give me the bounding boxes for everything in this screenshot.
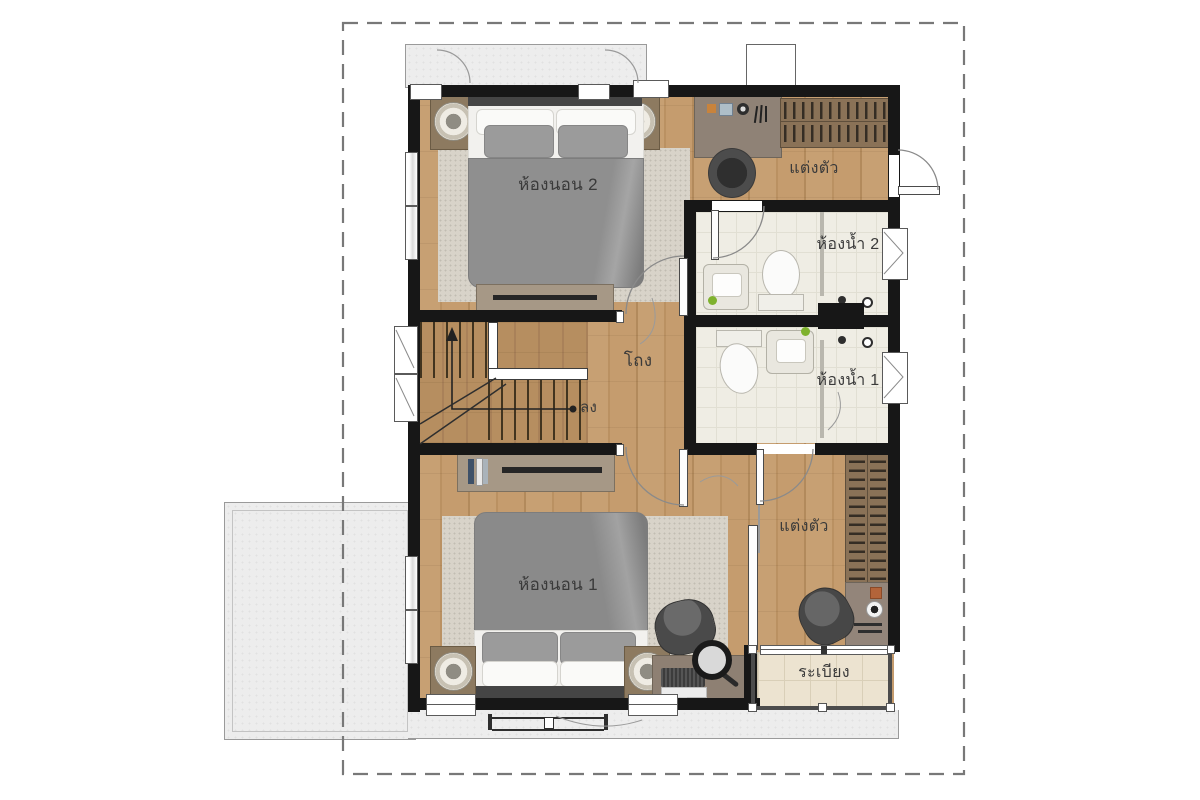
window [628, 694, 678, 716]
window [578, 84, 610, 100]
wardrobe-hangers-icon [780, 98, 890, 148]
pergola-beam-icon [492, 717, 604, 731]
bathroom2-shower-divider [820, 212, 824, 296]
toilet-icon [761, 250, 799, 312]
pillow-icon [484, 125, 554, 158]
brush-icon [858, 630, 882, 633]
railing-post [886, 703, 895, 712]
book-icon [719, 103, 733, 116]
sink-icon [766, 330, 814, 374]
wall-bedroom1-hall [420, 443, 622, 455]
brush-icon [754, 106, 758, 123]
brush-icon [854, 623, 882, 626]
shower-drain-icon [862, 337, 873, 348]
shower-valve-icon [838, 336, 846, 344]
pillow-icon [482, 661, 558, 687]
door-swing-arc [898, 150, 938, 190]
stair-lower-flight [488, 378, 588, 440]
bowl-icon [866, 601, 883, 618]
tray-icon [707, 104, 716, 113]
wall-bathrooms-vertical [684, 200, 696, 455]
balcony-sliding-door [760, 645, 888, 655]
window [426, 694, 476, 716]
bedroom1-headboard [474, 686, 646, 698]
bathroom1-label: ห้องน้ำ 1 [804, 372, 892, 390]
bedroom2-label: ห้องนอน 2 [500, 176, 616, 195]
toilet-icon [716, 330, 760, 394]
balcony-railing [888, 648, 892, 710]
book-icon [476, 458, 483, 486]
wall-bathroom1-bottom-left [684, 443, 757, 455]
bathroom1-door-leaf [756, 449, 764, 505]
bedside-ring-lamp-icon [434, 652, 473, 691]
stair-upper-flight [420, 322, 492, 378]
bowl-icon [737, 103, 749, 115]
window-fixed [394, 374, 418, 422]
stool-icon [708, 148, 756, 198]
balcony-label: ระเบียง [786, 664, 862, 682]
balcony-railing [751, 648, 755, 710]
window [410, 84, 442, 100]
bedroom1-label: ห้องนอน 1 [500, 576, 616, 595]
bathroom2-door-opening [712, 201, 762, 211]
brush-icon [759, 105, 762, 123]
dressing-bottom-label: แต่งตัว [768, 518, 840, 536]
railing-post [748, 645, 757, 654]
roof-slab-top [405, 44, 647, 88]
tray-icon [870, 587, 882, 599]
hall-label: โถง [612, 352, 664, 371]
book-icon [468, 459, 474, 484]
soap-icon [801, 327, 810, 336]
sliding-door-panel [748, 525, 758, 650]
wall-bedroom2-hall [420, 310, 622, 322]
wall-bathroom1-bottom-right [815, 443, 900, 455]
roof-outline-top-right [746, 44, 796, 90]
railing-post [748, 703, 757, 712]
bathroom2-label: ห้องน้ำ 2 [804, 236, 892, 254]
stair-railing [488, 368, 588, 380]
window [405, 206, 418, 260]
stairs-down-label: ลง [580, 400, 620, 417]
pillow-icon [558, 125, 628, 158]
bathroom1-door-opening [757, 444, 815, 454]
soap-icon [708, 296, 717, 305]
book-icon [483, 459, 488, 484]
floor-plan-canvas: ห้องนอน 2 แต่งตัว ห้องน้ำ 2 โถง ลง ห้องน… [0, 0, 1200, 800]
window [633, 80, 669, 98]
window [405, 610, 418, 664]
door-jamb [616, 444, 624, 456]
window [405, 556, 418, 610]
sink-icon [703, 264, 749, 310]
bedroom1-tv-console-icon [457, 450, 615, 492]
door-jamb [616, 311, 624, 323]
bedroom1-door-leaf [679, 449, 688, 507]
window-fixed [394, 326, 418, 374]
service-shaft [818, 303, 864, 329]
brush-icon [765, 106, 767, 122]
bathroom2-door-leaf [711, 210, 719, 260]
bedroom2-door-leaf [679, 258, 688, 316]
window [405, 152, 418, 206]
roof-slab-inner-line [232, 510, 408, 732]
roof-slab-left [224, 502, 416, 740]
dressing-top-label: แต่งตัว [778, 160, 850, 178]
exterior-door-leaf [898, 186, 940, 195]
bedroom2-tv-console-icon [476, 284, 614, 313]
wardrobe-hangers-icon [845, 450, 890, 584]
hand-mirror-icon [692, 640, 732, 680]
railing-post [818, 703, 827, 712]
